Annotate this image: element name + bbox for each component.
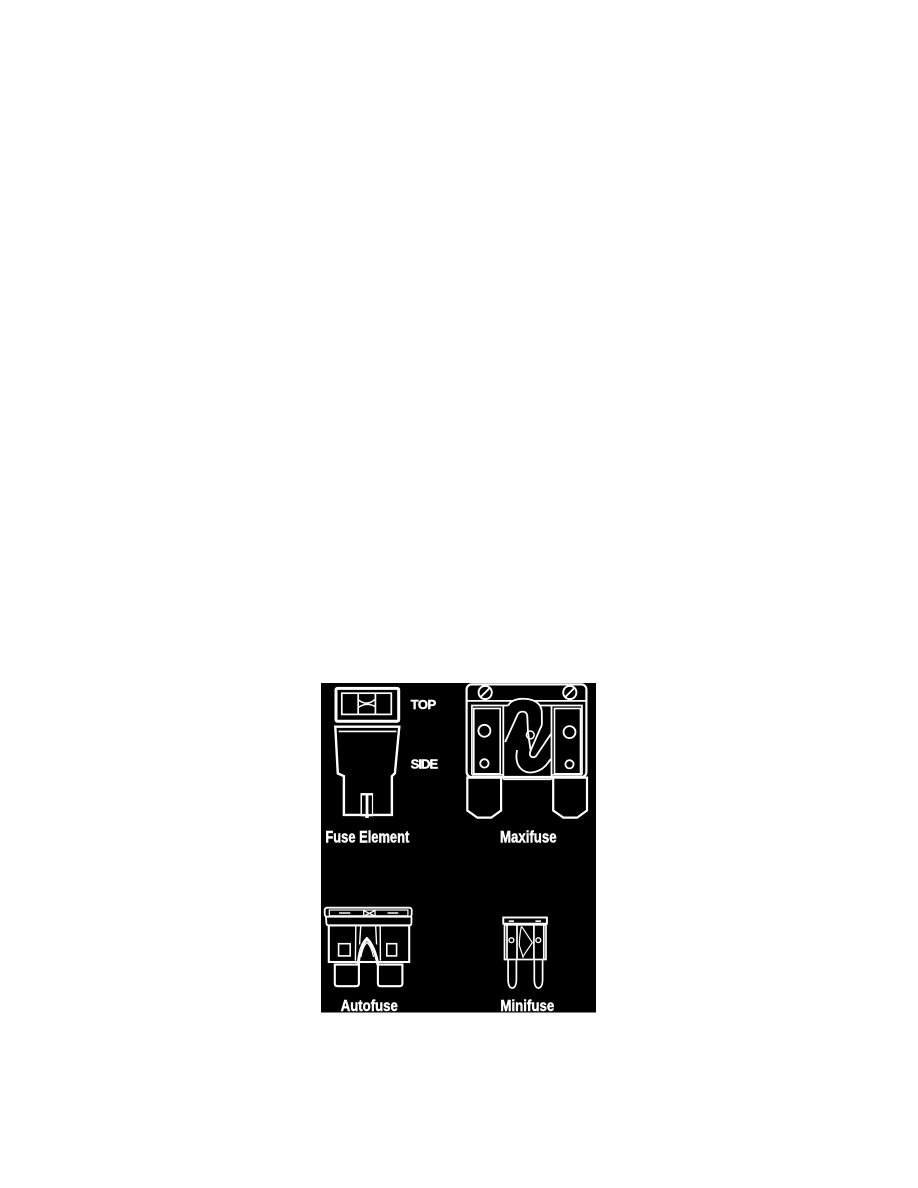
svg-text:Minifuse: Minifuse <box>500 998 554 1013</box>
svg-text:Fuse Element: Fuse Element <box>325 829 409 847</box>
svg-text:Autofuse: Autofuse <box>341 998 398 1013</box>
svg-text:Maxifuse: Maxifuse <box>500 829 557 847</box>
svg-text:TOP: TOP <box>411 697 437 712</box>
svg-text:SIDE: SIDE <box>411 756 439 771</box>
